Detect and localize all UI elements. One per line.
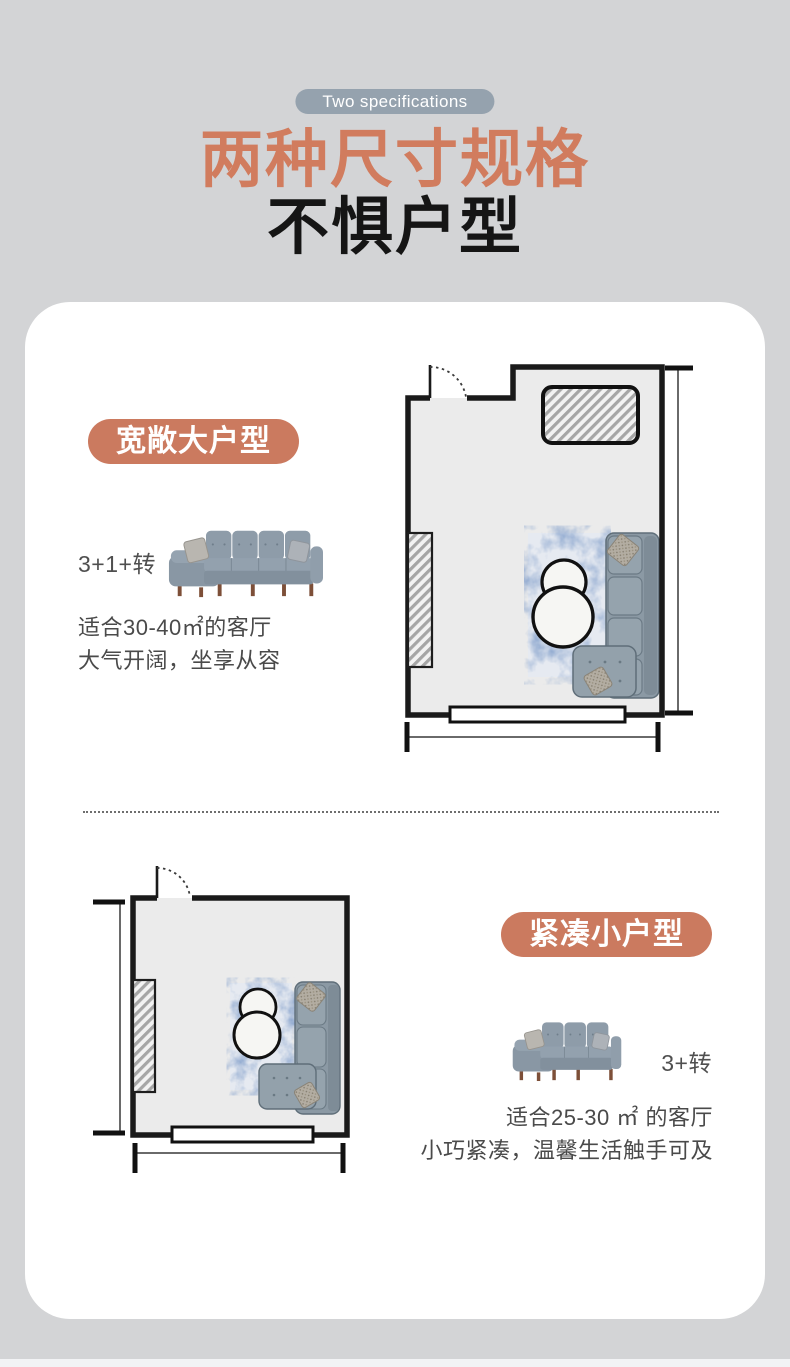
- pillow-left: [524, 1029, 545, 1050]
- tagline-text: 大气开阔，坐享从容: [78, 644, 281, 677]
- cabinet-hatched: [543, 387, 638, 443]
- tv-stand: [450, 707, 625, 722]
- window-hatched: [133, 980, 155, 1092]
- content-card: 宽敞大户型 3+1+转: [25, 302, 765, 1319]
- next-section-strip: [0, 1359, 790, 1367]
- armrest: [310, 546, 323, 583]
- sofa-config-label-1: 3+1+转: [78, 545, 156, 579]
- badge-small-layout: 紧凑小户型: [501, 912, 712, 957]
- dimension-bottom: [407, 722, 658, 752]
- coffee-table-large: [234, 1012, 280, 1058]
- coffee-table-large: [533, 587, 593, 647]
- pillow-right: [287, 540, 310, 563]
- main-title: 两种尺寸规格: [0, 126, 790, 194]
- dimension-bottom: [135, 1143, 343, 1173]
- pillow-right: [591, 1032, 609, 1050]
- armrest: [611, 1036, 621, 1069]
- dotted-divider: [83, 811, 719, 813]
- tv-stand: [172, 1127, 313, 1142]
- tagline-text: 小巧紧凑，温馨生活触手可及: [420, 1134, 713, 1167]
- sofa-photo-large: [167, 524, 323, 600]
- suitability-text: 适合25-30 ㎡ 的客厅: [420, 1101, 713, 1134]
- dimension-right: [665, 368, 693, 713]
- sofa-base: [204, 571, 313, 585]
- dimension-left: [93, 902, 125, 1133]
- badge-large-layout: 宽敞大户型: [88, 419, 299, 464]
- window-hatched: [408, 533, 432, 667]
- pillow-left: [183, 537, 209, 563]
- floorplan-small: [85, 855, 355, 1180]
- section-1-description: 适合30-40㎡的客厅 大气开阔，坐享从容: [78, 611, 281, 677]
- section-2-description: 适合25-30 ㎡ 的客厅 小巧紧凑，温馨生活触手可及: [420, 1101, 713, 1167]
- spec-tag-pill: Two specifications: [295, 89, 494, 114]
- sofa-base: [540, 1058, 612, 1070]
- sofa-config-label-2: 3+转: [661, 1044, 712, 1078]
- sofa-photo-small: [511, 1016, 623, 1084]
- door-swing-arc: [430, 367, 466, 397]
- floorplan-large: [390, 350, 700, 755]
- suitability-text: 适合30-40㎡的客厅: [78, 611, 281, 644]
- promo-page: Two specifications 两种尺寸规格 不惧户型 宽敞大户型 3+1…: [0, 0, 790, 1367]
- door-swing-arc: [157, 868, 190, 897]
- sub-title: 不惧户型: [0, 194, 790, 262]
